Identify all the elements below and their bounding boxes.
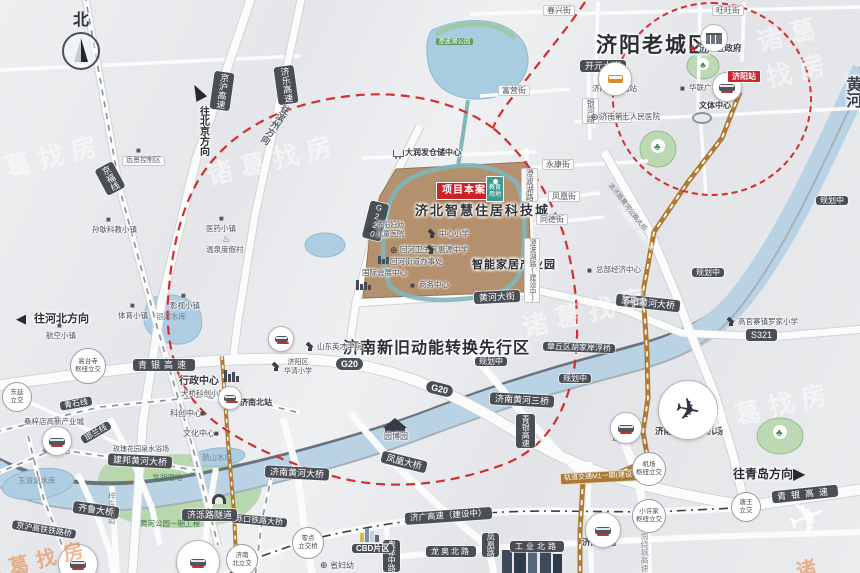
interchange-jinanbei-l2: 北立交: [232, 560, 252, 568]
subdistrict-icon: [378, 256, 389, 264]
poi-cbd: CBD片区: [352, 544, 393, 553]
road-label-g20-1: G20: [336, 358, 363, 370]
tiyu-icon: ■: [130, 301, 135, 310]
poi-admin-center: 行政中心: [179, 376, 219, 388]
water-longhu: 龙湖湿地: [152, 474, 182, 483]
road-label-qingyin-w: 青银高速: [133, 359, 195, 371]
title-pilot-zone: 济南新旧动能转换先行区: [343, 340, 530, 358]
clinic-icon: ⊕: [390, 245, 398, 256]
project-badge: 项目本案: [436, 182, 492, 200]
cart-icon: [393, 150, 404, 157]
hospital7-icon: ⊕: [591, 112, 599, 123]
poi-yingcai: 山东英才学院: [317, 343, 362, 352]
poi-darunfa: 大润发仓储中心: [405, 148, 461, 157]
daqiao-train-icon: [268, 326, 294, 352]
interchange-gaotaisi-l1: 高台寺: [78, 358, 98, 366]
interchange-dongyan-l2: 立交: [11, 397, 24, 405]
poi-fuyou-hospital: 济阳妇幼 儿童医院: [376, 222, 404, 240]
hotspring-icon: ♨: [222, 234, 230, 245]
interchange-dongyan: 东延 立交: [2, 382, 32, 412]
qingdao-arrow-icon: ▶: [793, 464, 805, 484]
poi-middle-school: 惠源中学: [438, 246, 468, 255]
interchange-tangwang: 唐王 立交: [731, 492, 761, 522]
kechuang-icon: ■: [200, 409, 205, 418]
town-tiyu: 体育小镇: [118, 312, 148, 321]
jiyang-station-tag: 济阳站: [727, 70, 761, 83]
interchange-gaotaisi-l2: 枢纽立交: [75, 366, 101, 374]
poi-fuyou-l2: 儿童医院: [376, 231, 404, 238]
poi-hospital7: 济南第七人民医院: [600, 113, 660, 122]
interchange-lingdian: 零点 立交桥: [292, 527, 324, 559]
water-queshan: 鹊山水库: [202, 454, 232, 463]
sungeng-icon: ■: [106, 215, 111, 224]
street-chunxing: 春兴街: [543, 5, 575, 16]
poi-shengfuyou: 省妇幼: [330, 561, 354, 570]
road-label-longao: 龙奥北路: [426, 546, 476, 557]
expo-buildings-icon: [356, 280, 371, 290]
interchange-lingdian-l1: 零点: [302, 535, 315, 543]
hebei-arrow-icon: ◀: [16, 311, 26, 327]
edu-land-badge: 教育 用地: [486, 176, 504, 202]
edu-land-line1: 教育: [489, 185, 501, 191]
poi-rose-bath: 玫瑰花园泉水浴场: [113, 446, 169, 454]
town-yiyao: 医药小镇: [206, 225, 236, 234]
dongcheng-cap-icon: [270, 362, 281, 371]
street-chengbohu: 澄波湖路: [521, 168, 538, 202]
poi-culture-center: 文体中心: [699, 101, 731, 110]
road-label-gongye: 工业北路: [510, 541, 564, 552]
interchange-jinanbei-l1: 济南: [236, 552, 249, 560]
poi-jiyang-school-l2: 华清小学: [284, 368, 312, 375]
water-chengbohu: 澄波湖公园: [436, 38, 473, 45]
title-smart-park: 智能家居产业园: [472, 259, 556, 272]
poi-expo: 国际会展中心: [362, 269, 407, 278]
interchange-jichang-l2: 枢纽立交: [636, 469, 662, 477]
yiyao-icon: ■: [219, 214, 224, 223]
hq-icon: ■: [587, 266, 592, 275]
middle-school-cap-icon: [425, 245, 436, 254]
street-fenghuang: 凤凰街: [548, 191, 580, 202]
interchange-jichang-l1: 机场: [643, 461, 656, 469]
road-label-s321: S321: [746, 329, 777, 341]
water-yuqinghu: 玉清湖水库: [18, 477, 56, 486]
poi-jiyang-school: 济阳区 华清小学: [284, 359, 312, 377]
government-building-icon: [700, 24, 728, 52]
hangkong-icon: ■: [57, 321, 62, 330]
stadium-icon: [692, 112, 712, 124]
planning-label-1: 规划中: [816, 196, 848, 205]
jinandong-train-icon: [585, 512, 621, 548]
town-wenquan: 温泉度假村: [206, 246, 244, 255]
direction-beijing: 往北京方向: [197, 106, 209, 156]
interchange-xiaoxujia: 小许家 枢纽立交: [632, 499, 666, 533]
svg-text:♣: ♣: [776, 428, 783, 439]
town-hangkong: 航空小镇: [46, 332, 76, 341]
interchange-jichang: 机场 枢纽立交: [632, 452, 666, 486]
road-label-qingyin-v: 青银高速: [516, 414, 535, 448]
road-label-fenghuang-rd: 凤凰路: [482, 533, 499, 557]
compass-needle-icon: [62, 32, 100, 70]
town-sungeng: 孙耿科教小镇: [92, 226, 137, 235]
interchange-jinanbei: 济南 北立交: [226, 544, 258, 573]
compass-north-label: 北: [62, 6, 100, 30]
bus-station-icon: [598, 62, 632, 96]
jinanbei-train-icon: [218, 386, 242, 410]
poi-yuanbo: 园博园: [384, 432, 408, 441]
real-estate-location-map: ♣♣♣: [0, 0, 860, 573]
planning-label-2: 规划中: [692, 268, 724, 277]
tunnel-icon: [212, 494, 226, 504]
town-yingshi: 影视小镇: [170, 302, 200, 311]
yingshi-icon: ■: [181, 291, 186, 300]
water-yinhe: 银河水库: [156, 313, 186, 322]
yuanjing-icon: ■: [136, 146, 141, 155]
street-zidong: 梓东大道: [107, 492, 116, 524]
compass: 北: [62, 6, 100, 70]
poi-hq: 总部经济中心: [596, 266, 641, 275]
interchange-lingdian-l2: 立交桥: [298, 543, 318, 551]
yaoqiang-train-icon: [610, 412, 642, 444]
street-wangwang: 旺旺街: [712, 5, 744, 16]
poi-kechuang: 科创中心: [170, 409, 202, 418]
interchange-tangwang-l2: 立交: [740, 507, 753, 515]
planning-label-4: 规划中: [475, 357, 507, 366]
street-fuying: 富营街: [498, 85, 530, 96]
poi-central-primary: 中心小学: [439, 230, 469, 239]
interchange-dongyan-l1: 东延: [11, 389, 24, 397]
town-yuanjing: 远景控制区: [122, 156, 165, 166]
luojia-cap-icon: [725, 317, 736, 326]
fuyou-hospital-icon: ⊕: [366, 224, 374, 235]
poi-fuyou-l1: 济阳妇幼: [376, 222, 404, 229]
street-yongkang: 永康街: [542, 159, 574, 170]
street-chengbohu-2: 澄波湖路(建设中): [524, 238, 540, 303]
airport-plane-icon: ✈: [672, 390, 704, 429]
title-tech-city: 济北智慧住居科技城: [415, 204, 550, 219]
edu-land-line2: 用地: [489, 192, 501, 198]
poi-luojia: 高官寨镇罗家小学: [738, 318, 798, 327]
airport-circle: ✈: [658, 380, 718, 440]
poi-subdistrict: 回河街道办事处: [390, 258, 443, 267]
street-tongde: 同德街: [536, 214, 568, 225]
interchange-gaotaisi: 高台寺 枢纽立交: [70, 348, 106, 384]
poi-business: 商务中心: [419, 281, 449, 290]
poi-jiyang-school-l1: 济阳区: [288, 359, 309, 366]
sangzidian-train-icon: [42, 426, 72, 456]
yingcai-cap-icon: [304, 342, 315, 351]
planning-label-3: 规划中: [559, 374, 591, 383]
interchange-xiaoxujia-l2: 枢纽立交: [636, 516, 662, 524]
direction-qingdao: 往青岛方向: [733, 468, 793, 482]
yellow-river-label: 黄河: [842, 76, 860, 108]
shengfuyou-icon: ⊕: [320, 560, 328, 571]
gov-star-icon: ★: [688, 42, 698, 55]
poi-wenhua: 文化中心: [183, 429, 215, 438]
admin-buildings-icon: [224, 370, 239, 382]
station-jinanbei: 济南北站: [240, 398, 272, 407]
interchange-tangwang-l1: 唐王: [740, 499, 753, 507]
central-primary-cap-icon: [426, 229, 437, 238]
water-hhpark: 黄河公园一期工程: [140, 520, 200, 529]
wenhua-icon: ■: [214, 429, 219, 438]
cbd-icon: [360, 528, 379, 542]
plaza-icon: ■: [680, 84, 685, 93]
business-icon: ■: [410, 281, 415, 290]
interchange-xiaoxujia-l1: 小许家: [639, 508, 659, 516]
